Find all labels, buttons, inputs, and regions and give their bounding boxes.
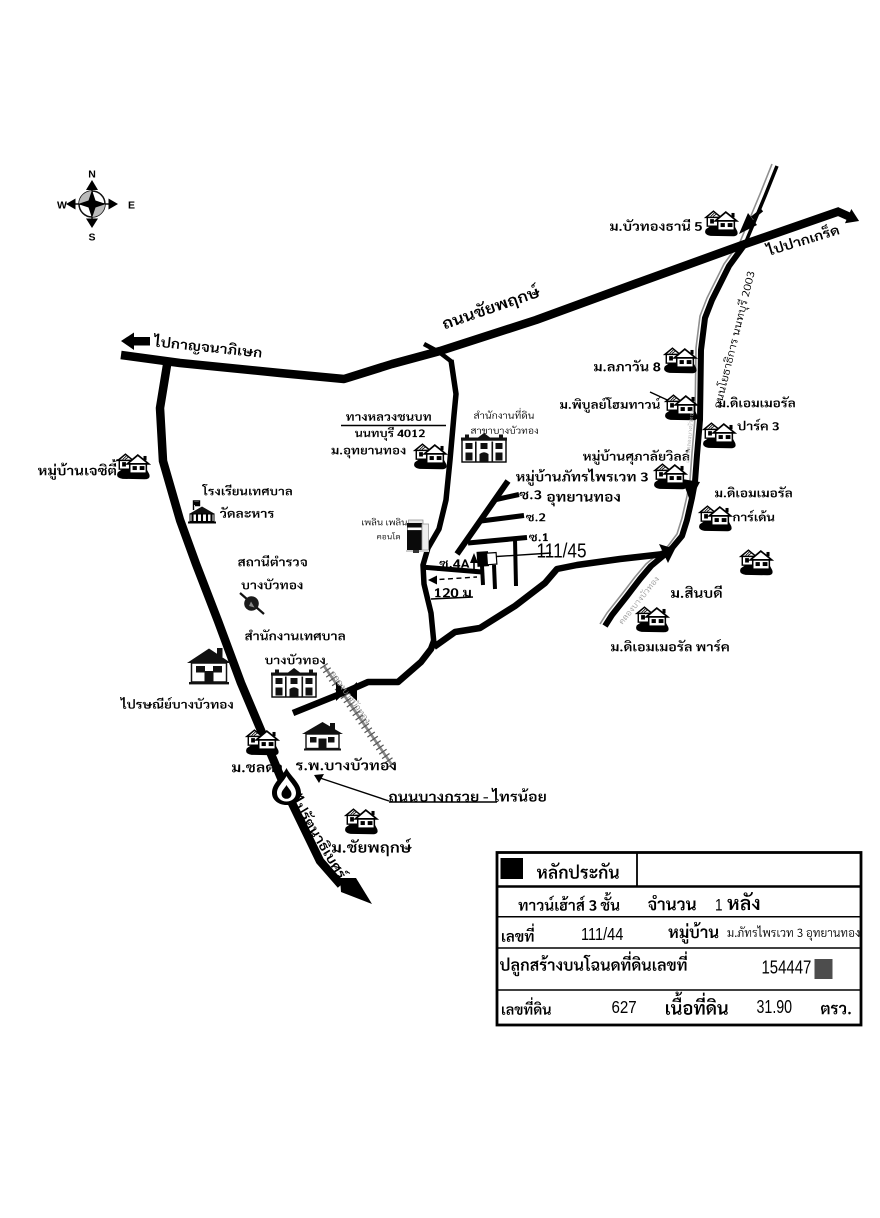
svg-text:154447: 154447: [762, 957, 812, 978]
svg-text:N: N: [88, 169, 96, 181]
svg-text:627: 627: [612, 997, 637, 1018]
svg-text:111/44: 111/44: [581, 925, 623, 945]
svg-text:31.90: 31.90: [757, 997, 793, 1017]
svg-text:S: S: [88, 232, 95, 244]
svg-text:W: W: [57, 200, 67, 212]
svg-text:111/45: 111/45: [537, 539, 587, 562]
svg-text:E: E: [128, 200, 135, 212]
svg-text:1: 1: [715, 896, 723, 915]
